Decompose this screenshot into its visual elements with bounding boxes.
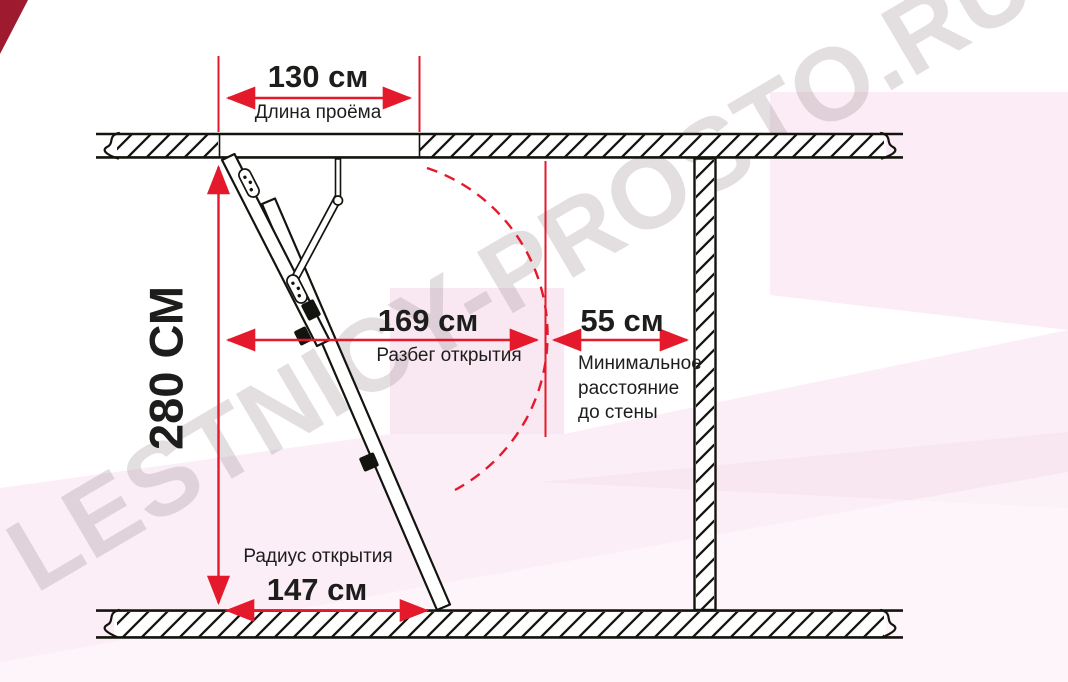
- ceiling: [96, 133, 903, 159]
- dim-opening-run-label: Разбег открытия: [376, 345, 521, 367]
- dim-opening-radius-value: 147 см: [267, 572, 368, 608]
- dim-room-height-value: 280 СМ: [139, 286, 194, 450]
- attic-ladder: [222, 154, 450, 610]
- spring-strut-arm: [290, 196, 341, 283]
- dim-opening-radius-label: Радиус открытия: [243, 546, 392, 568]
- strut-joint: [334, 196, 343, 205]
- dim-opening-length-label: Длина проёма: [255, 102, 382, 124]
- strut-hanger: [336, 159, 341, 199]
- dim-opening-length-value: 130 см: [268, 59, 369, 95]
- attic-ladder-dimensions-diagram: LESTNICY-PROSTO.RU: [0, 0, 1068, 682]
- dim-wall-clearance-value: 55 см: [580, 303, 663, 339]
- floor: [96, 610, 903, 638]
- dim-opening-run-value: 169 см: [378, 303, 479, 339]
- dim-wall-clearance-label: Минимальное расстояние до стены: [578, 352, 702, 426]
